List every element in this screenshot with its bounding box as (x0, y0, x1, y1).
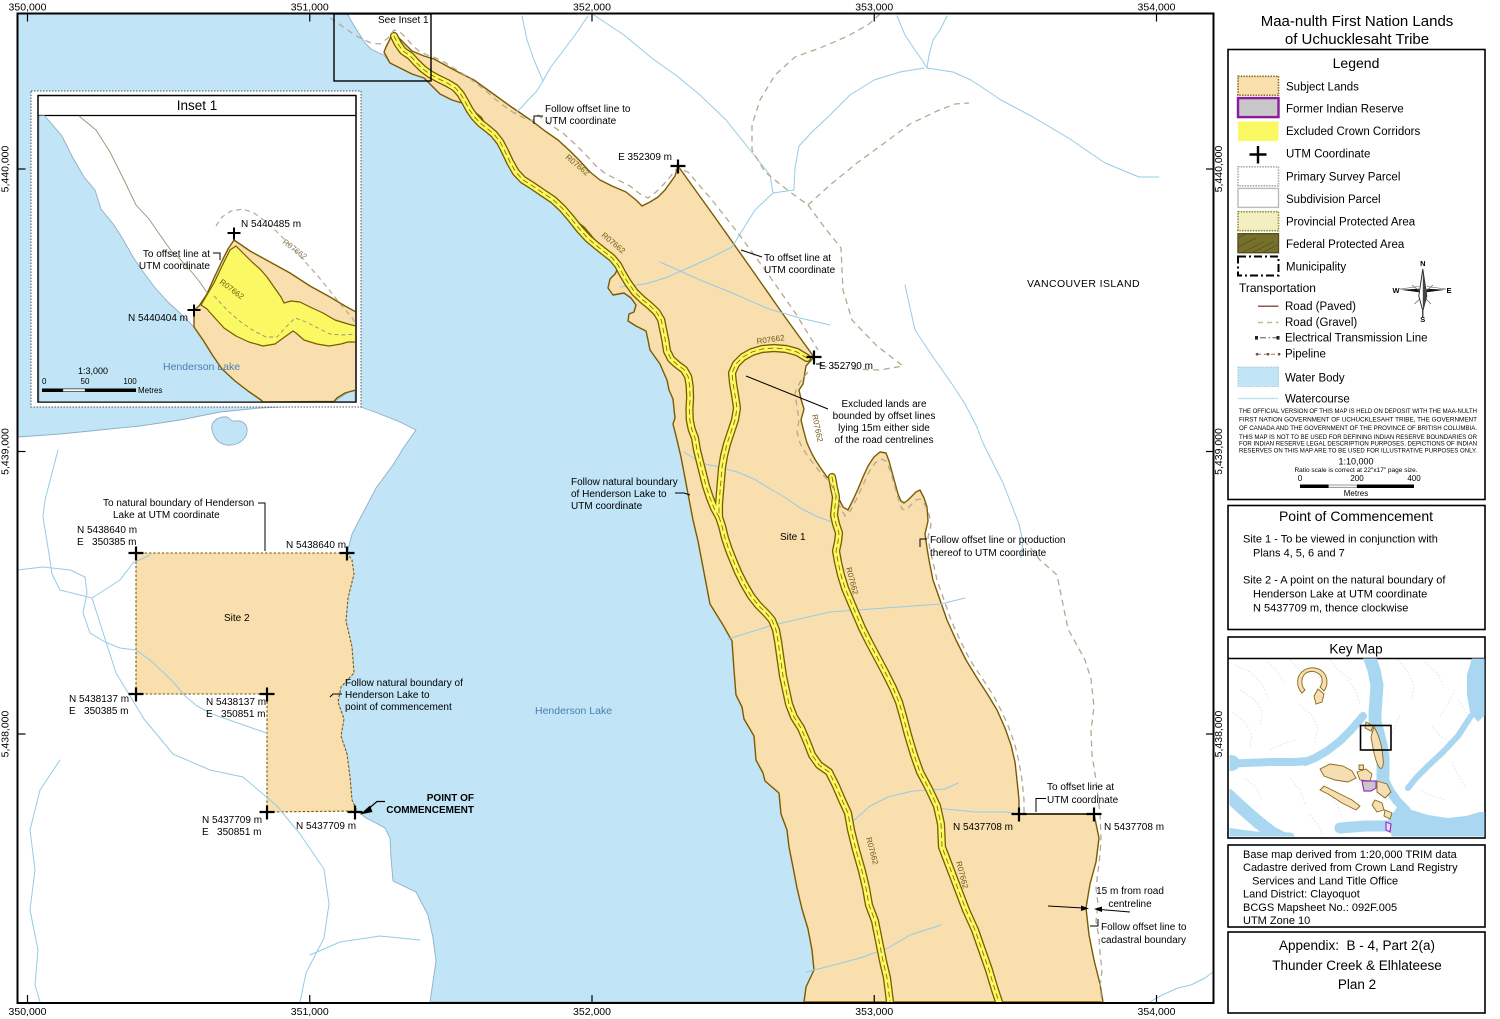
svg-text:E 350385 m: E 350385 m (77, 537, 136, 548)
svg-text:Primary Survey Parcel: Primary Survey Parcel (1286, 171, 1400, 183)
svg-text:Services and Land Title Office: Services and Land Title Office (1243, 875, 1398, 887)
svg-text:5,440,000: 5,440,000 (0, 145, 12, 192)
svg-text:N 5438640 m: N 5438640 m (286, 540, 346, 551)
svg-text:To offset line at: To offset line at (143, 249, 210, 260)
svg-text:354,000: 354,000 (1138, 1006, 1176, 1018)
svg-text:Thunder Creek & Elhlateese: Thunder Creek & Elhlateese (1272, 958, 1442, 973)
svg-text:350,000: 350,000 (9, 2, 47, 14)
svg-text:Subject Lands: Subject Lands (1286, 81, 1359, 93)
svg-text:Henderson Lake at UTM coordina: Henderson Lake at UTM coordinate (1253, 589, 1427, 601)
svg-text:FIRST NATION GOVERNMENT OF UCH: FIRST NATION GOVERNMENT OF UCHUCKLESAHT … (1239, 417, 1477, 424)
svg-text:Site 1: Site 1 (780, 532, 806, 543)
svg-text:N 5437709 m: N 5437709 m (202, 815, 262, 826)
svg-text:of Uchucklesaht Tribe: of Uchucklesaht Tribe (1285, 31, 1429, 48)
svg-text:Road (Paved): Road (Paved) (1285, 301, 1356, 313)
svg-text:E 350851 m: E 350851 m (206, 709, 265, 720)
svg-text:THE OFFICIAL VERSION OF THIS M: THE OFFICIAL VERSION OF THIS MAP IS HELD… (1239, 408, 1477, 415)
svg-text:Cadastre derived from Crown La: Cadastre derived from Crown Land Registr… (1243, 862, 1458, 874)
svg-text:N 5437709 m, thence clockwise: N 5437709 m, thence clockwise (1253, 603, 1408, 615)
svg-text:UTM coordinate: UTM coordinate (545, 116, 617, 127)
svg-text:Follow offset line to: Follow offset line to (545, 104, 631, 115)
svg-text:W: W (1392, 286, 1400, 295)
svg-text:Follow offset line or producti: Follow offset line or production (930, 535, 1065, 546)
svg-text:Site 2 - A point on the natura: Site 2 - A point on the natural boundary… (1243, 575, 1446, 587)
svg-text:bounded by offset lines: bounded by offset lines (833, 411, 936, 422)
svg-text:15 m from road: 15 m from road (1096, 886, 1164, 897)
svg-text:UTM coordinate: UTM coordinate (139, 261, 211, 272)
svg-text:100: 100 (123, 377, 137, 386)
svg-text:Key Map: Key Map (1329, 642, 1382, 657)
svg-text:N 5437708 m: N 5437708 m (1104, 822, 1164, 833)
svg-text:5,439,000: 5,439,000 (1213, 428, 1225, 475)
svg-text:Maa-nulth First Nation Lands: Maa-nulth First Nation Lands (1261, 13, 1454, 30)
svg-text:351,000: 351,000 (291, 1006, 329, 1018)
svg-text:UTM coordinate: UTM coordinate (764, 265, 836, 276)
svg-text:See Inset 1: See Inset 1 (378, 15, 429, 26)
svg-text:Follow natural boundary of: Follow natural boundary of (345, 678, 463, 689)
svg-text:point of commencement: point of commencement (345, 702, 452, 713)
svg-text:E: E (1446, 286, 1451, 295)
svg-text:POINT OF: POINT OF (427, 793, 474, 804)
svg-text:E 350385 m: E 350385 m (69, 706, 128, 717)
svg-text:Transportation: Transportation (1239, 281, 1316, 295)
svg-text:5,440,000: 5,440,000 (1213, 145, 1225, 192)
svg-text:Metres: Metres (1344, 489, 1368, 498)
svg-text:N 5437708 m: N 5437708 m (953, 822, 1013, 833)
svg-text:centreline: centreline (1108, 899, 1152, 910)
svg-text:N 5440485 m: N 5440485 m (241, 219, 301, 230)
svg-text:UTM coordinate: UTM coordinate (571, 501, 643, 512)
svg-text:N 5438640 m: N 5438640 m (77, 525, 137, 536)
svg-text:Lake at UTM coordinate: Lake at UTM coordinate (113, 510, 220, 521)
svg-text:Site 1 - To be viewed in conju: Site 1 - To be viewed in conjunction wit… (1243, 534, 1438, 546)
svg-text:Excluded lands are: Excluded lands are (841, 399, 926, 410)
svg-text:Land District: Clayoquot: Land District: Clayoquot (1243, 889, 1360, 901)
svg-text:COMMENCEMENT: COMMENCEMENT (386, 805, 474, 816)
svg-text:Metres: Metres (138, 386, 162, 395)
svg-text:N 5437709 m: N 5437709 m (296, 821, 356, 832)
svg-text:1:10,000: 1:10,000 (1338, 457, 1373, 467)
svg-text:Henderson Lake: Henderson Lake (535, 705, 612, 717)
svg-text:Inset 1: Inset 1 (177, 98, 218, 113)
svg-text:Subdivision Parcel: Subdivision Parcel (1286, 194, 1381, 206)
svg-text:N 5438137 m: N 5438137 m (206, 697, 266, 708)
svg-text:Former Indian Reserve: Former Indian Reserve (1286, 104, 1404, 116)
svg-text:Legend: Legend (1333, 55, 1380, 71)
svg-text:Federal Protected Area: Federal Protected Area (1286, 239, 1405, 251)
svg-text:N 5440404 m: N 5440404 m (128, 313, 188, 324)
svg-text:Appendix: B - 4, Part 2(a): Appendix: B - 4, Part 2(a) (1279, 938, 1435, 953)
svg-text:BCGS Mapsheet No.: 092F.005: BCGS Mapsheet No.: 092F.005 (1243, 902, 1397, 914)
svg-text:Pipeline: Pipeline (1285, 349, 1326, 361)
svg-text:E 352309 m: E 352309 m (618, 152, 672, 163)
svg-text:Point of Commencement: Point of Commencement (1279, 508, 1433, 524)
svg-text:Municipality: Municipality (1286, 262, 1346, 274)
svg-text:Follow offset line to: Follow offset line to (1101, 922, 1187, 933)
svg-text:5,439,000: 5,439,000 (0, 428, 12, 475)
svg-text:Ratio scale is correct at 22"x: Ratio scale is correct at 22"x17" page s… (1294, 467, 1417, 474)
svg-text:UTM coordinate: UTM coordinate (1047, 795, 1119, 806)
svg-text:354,000: 354,000 (1138, 2, 1176, 14)
svg-text:To offset line at: To offset line at (764, 253, 831, 264)
svg-text:Plan 2: Plan 2 (1338, 977, 1376, 992)
svg-text:Provincial Protected Area: Provincial Protected Area (1286, 216, 1416, 228)
svg-text:200: 200 (1350, 474, 1364, 483)
svg-text:OF CANADA AND THE GOVERNMENT O: OF CANADA AND THE GOVERNMENT OF THE PROV… (1239, 425, 1477, 432)
svg-text:thereof to UTM coordinate: thereof to UTM coordinate (930, 548, 1047, 559)
svg-text:350,000: 350,000 (9, 1006, 47, 1018)
svg-text:400: 400 (1407, 474, 1421, 483)
svg-text:To offset line at: To offset line at (1047, 782, 1114, 793)
svg-text:Henderson Lake: Henderson Lake (163, 361, 240, 373)
svg-text:N: N (1420, 259, 1425, 268)
svg-text:of Henderson Lake to: of Henderson Lake to (571, 489, 667, 500)
svg-text:Site 2: Site 2 (224, 613, 250, 624)
svg-text:cadastral boundary: cadastral boundary (1101, 935, 1186, 946)
svg-text:Follow natural boundary: Follow natural boundary (571, 477, 678, 488)
svg-text:Electrical Transmission Line: Electrical Transmission Line (1285, 333, 1428, 345)
svg-text:353,000: 353,000 (855, 2, 893, 14)
svg-text:E 350851 m: E 350851 m (202, 827, 261, 838)
svg-text:UTM Coordinate: UTM Coordinate (1286, 149, 1370, 161)
svg-text:0: 0 (1298, 474, 1303, 483)
svg-text:UTM Zone 10: UTM Zone 10 (1243, 915, 1310, 927)
svg-text:lying 15m either side: lying 15m either side (838, 423, 930, 434)
svg-text:352,000: 352,000 (573, 2, 611, 14)
svg-text:Base map derived from 1:20,000: Base map derived from 1:20,000 TRIM data (1243, 849, 1458, 861)
svg-text:N 5438137 m: N 5438137 m (69, 694, 129, 705)
svg-text:5,438,000: 5,438,000 (1213, 710, 1225, 757)
svg-text:Plans 4, 5, 6 and 7: Plans 4, 5, 6 and 7 (1253, 548, 1345, 560)
svg-text:Road (Gravel): Road (Gravel) (1285, 317, 1357, 329)
svg-text:0: 0 (42, 377, 47, 386)
svg-text:5,438,000: 5,438,000 (0, 710, 12, 757)
svg-text:RESERVES ON THIS MAP ARE TO BE: RESERVES ON THIS MAP ARE TO BE USED FOR … (1239, 447, 1477, 454)
svg-text:of the road centrelines: of the road centrelines (835, 435, 934, 446)
svg-text:1:3,000: 1:3,000 (78, 366, 108, 376)
svg-text:50: 50 (81, 377, 90, 386)
svg-text:VANCOUVER ISLAND: VANCOUVER ISLAND (1027, 278, 1140, 290)
svg-text:Water Body: Water Body (1285, 372, 1345, 384)
svg-text:E 352790 m: E 352790 m (819, 361, 873, 372)
svg-text:351,000: 351,000 (291, 2, 329, 14)
svg-text:352,000: 352,000 (573, 1006, 611, 1018)
svg-text:353,000: 353,000 (855, 1006, 893, 1018)
svg-text:Henderson Lake to: Henderson Lake to (345, 690, 430, 701)
svg-text:To natural boundary of Henders: To natural boundary of Henderson (103, 498, 254, 509)
svg-text:Watercourse: Watercourse (1285, 393, 1350, 405)
svg-text:Excluded Crown Corridors: Excluded Crown Corridors (1286, 126, 1420, 138)
